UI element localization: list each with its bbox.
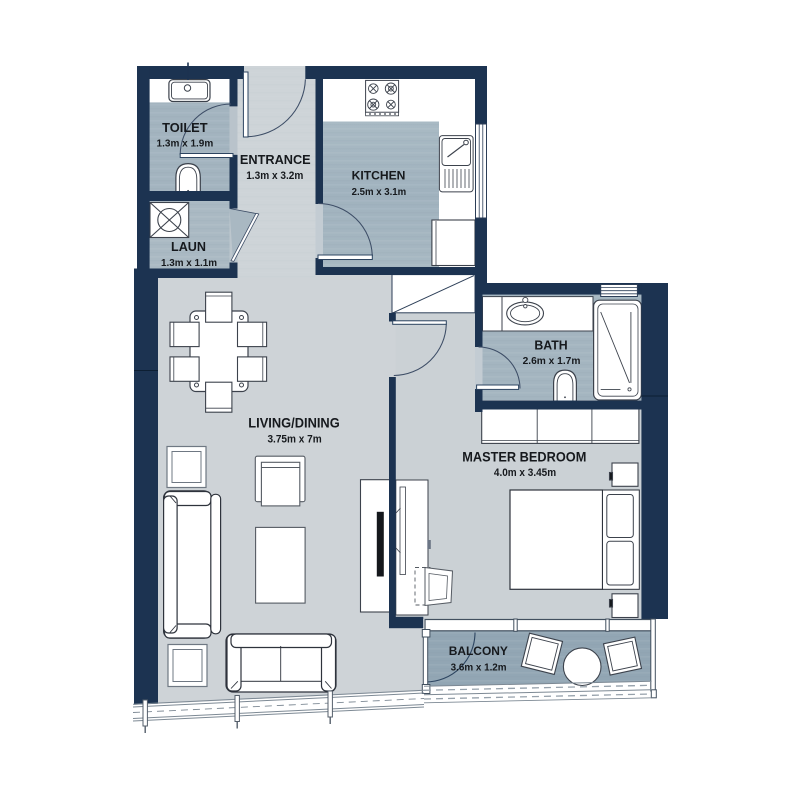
svg-text:1.3m x 3.2m: 1.3m x 3.2m <box>246 170 303 182</box>
svg-text:2.5m x 3.1m: 2.5m x 3.1m <box>352 187 407 198</box>
svg-text:LAUN: LAUN <box>171 239 206 254</box>
svg-text:KITCHEN: KITCHEN <box>352 168 406 182</box>
svg-text:2.6m x 1.7m: 2.6m x 1.7m <box>523 356 581 367</box>
svg-text:3.6m x 1.2m: 3.6m x 1.2m <box>451 662 507 673</box>
svg-text:MASTER BEDROOM: MASTER BEDROOM <box>462 450 586 465</box>
svg-text:BATH: BATH <box>534 338 567 352</box>
svg-text:TOILET: TOILET <box>162 120 208 135</box>
svg-text:BALCONY: BALCONY <box>449 644 508 658</box>
svg-text:3.75m x 7m: 3.75m x 7m <box>267 433 321 445</box>
svg-text:4.0m x 3.45m: 4.0m x 3.45m <box>494 467 556 479</box>
svg-text:1.3m x 1.9m: 1.3m x 1.9m <box>157 139 214 150</box>
svg-text:LIVING/DINING: LIVING/DINING <box>248 414 339 430</box>
svg-text:ENTRANCE: ENTRANCE <box>240 152 311 167</box>
svg-text:1.3m x 1.1m: 1.3m x 1.1m <box>161 258 217 269</box>
